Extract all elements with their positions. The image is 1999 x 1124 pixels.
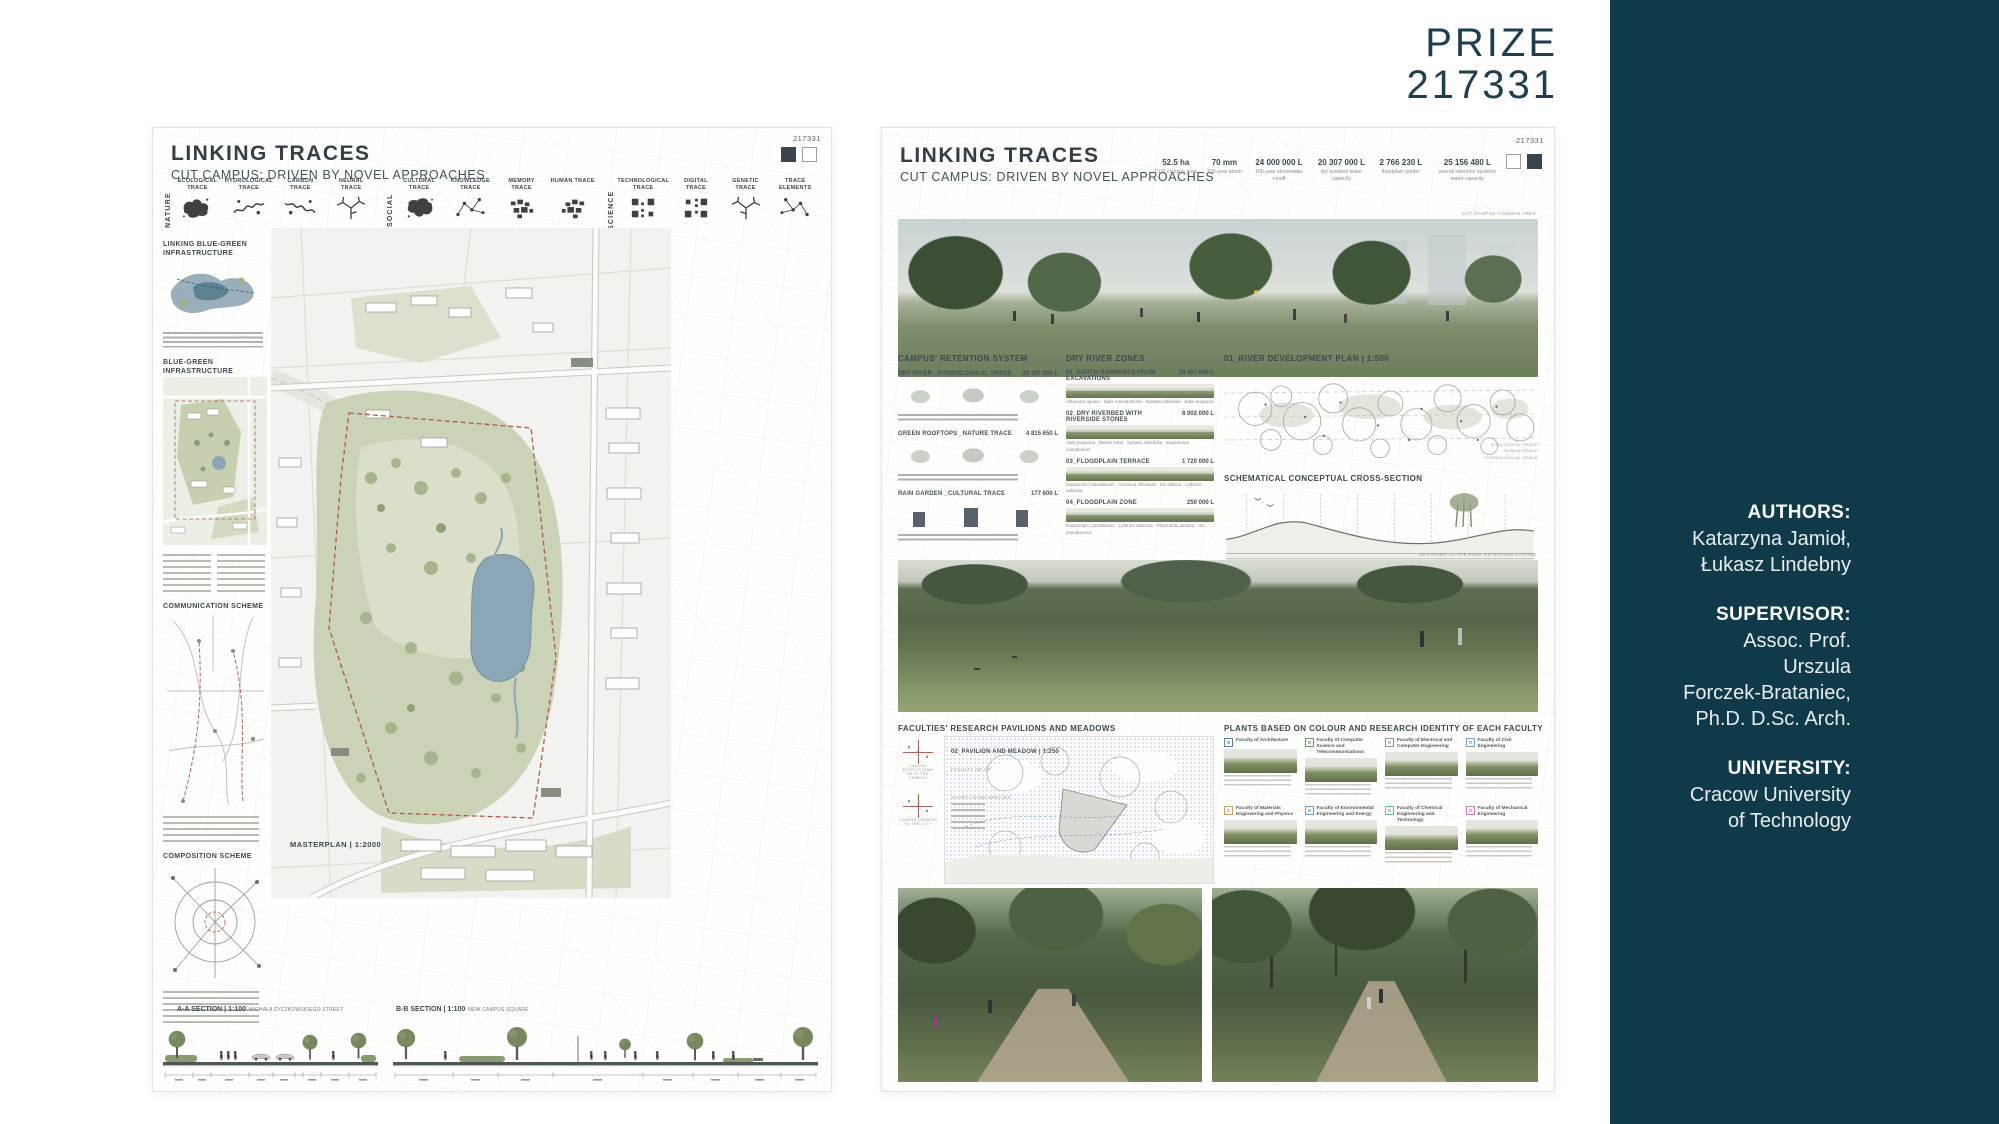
zone-item: 01_EARTH RAMPARTS FROM EXCAVATIONS20 307…: [1066, 370, 1214, 405]
slide-canvas: PRIZE 217331 AUTHORS: Katarzyna Jamioł, …: [0, 0, 1999, 1124]
caption-text-placeholder: [163, 332, 263, 348]
trace-item: DIGITAL TRACE: [671, 178, 721, 226]
trace-item: KNOWLEDGE TRACE: [445, 178, 496, 226]
poster-board-2: 217331 LINKING TRACES CUT CAMPUS: DRIVEN…: [881, 127, 1555, 1092]
supervisor-line: Urszula: [1683, 654, 1851, 680]
section-heading: COMMUNICATION SCHEME: [163, 602, 271, 611]
faculty-card: Faculty of Civil Engineering: [1466, 738, 1539, 796]
stat: 70 mm100-year storm: [1205, 158, 1245, 183]
credits-block: AUTHORS: Katarzyna Jamioł, Łukasz Lindeb…: [1683, 500, 1851, 834]
faculty-card: Faculty of Materials Engineering and Phy…: [1224, 806, 1297, 864]
note-item: LINKING CAMPUS TO THE CITY: [898, 794, 938, 826]
zone-species: Eupatorium cannabinum · Veronica officin…: [1066, 482, 1214, 495]
technological-trace-icon: [626, 195, 660, 221]
faculty-meadow-photo: [1466, 820, 1539, 844]
faculty-meadow-photo: [1305, 758, 1378, 782]
trace-item: TRACE ELEMENTS: [770, 178, 820, 226]
supervisor-label: SUPERVISOR:: [1683, 602, 1851, 628]
communication-scheme: [163, 611, 267, 807]
poster-header: LINKING TRACES CUT CAMPUS: DRIVEN BY NOV…: [171, 142, 485, 182]
trace-item: ECOLOGICAL TRACE: [172, 178, 223, 226]
trace-item: NEURAL TRACE: [326, 178, 377, 226]
board-index-squares: [781, 147, 817, 162]
retention-diagram: [898, 380, 1058, 412]
stat: 52.5 haCUT campus area: [1154, 158, 1198, 183]
key-stats-row: 52.5 haCUT campus area 70 mm100-year sto…: [1154, 158, 1502, 183]
zone-species: Eupatorium cannabinum · Lythrum salicari…: [1066, 523, 1214, 536]
zone-item: 04_FLOODPLAIN ZONE250 000 L Eupatorium c…: [1066, 500, 1214, 536]
legend-rows: [163, 816, 259, 842]
plants-heading: PLANTS BASED ON COLOUR AND RESEARCH IDEN…: [1224, 724, 1543, 733]
faculty-data-rows: [1466, 846, 1533, 858]
street-section-a: [163, 1018, 378, 1084]
author-name: Katarzyna Jamioł,: [1683, 526, 1851, 552]
cross-section-heading: SCHEMATICAL CONCEPTUAL CROSS-SECTION: [1224, 474, 1538, 483]
zone-photo-strip: [1066, 425, 1214, 439]
board-1-filled-square: [781, 147, 796, 162]
zones-heading: DRY RIVER ZONES: [1066, 354, 1214, 363]
board-index-squares: [1506, 154, 1542, 169]
trace-item: CARBON TRACE: [275, 178, 326, 226]
river-plan-heading: 01_RIVER DEVELOPMENT PLAN | 1:500: [1224, 354, 1538, 363]
carbon-trace-icon: [283, 195, 317, 221]
faculty-card: Faculty of Mechanical Engineering: [1466, 806, 1539, 864]
jogger-figures: [898, 560, 1538, 712]
faculty-icon: [1385, 738, 1394, 747]
trace-elements-icon: [778, 195, 812, 221]
faculty-icon: [1385, 806, 1394, 815]
rain-garden-diagram: [898, 500, 1058, 532]
faculty-data-rows: [1385, 778, 1452, 790]
mid-photo-label: DRY RIVER AS THE PARK RETENTION SYSTEM: [1419, 552, 1536, 557]
hydrological-trace-icon: [232, 195, 266, 221]
faculty-icon: [1305, 738, 1314, 747]
university-label: UNIVERSITY:: [1683, 756, 1851, 782]
retention-diagram: [898, 440, 1058, 472]
stat: 25 156 480 Loverall retention systems wa…: [1433, 158, 1502, 183]
supervisor-line: Ph.D. D.Sc. Arch.: [1683, 706, 1851, 732]
faculty-card: Faculty of Computer Science and Telecomm…: [1305, 738, 1378, 796]
top-photo-label: CUT CAMPUS COMMON AREA: [1462, 211, 1536, 216]
zone-item: 02_DRY RIVERBED WITH RIVERSIDE STONES8 0…: [1066, 411, 1214, 453]
memory-trace-icon: [505, 195, 539, 221]
bgi-plan: [163, 377, 267, 545]
board-2-filled-square: [1527, 154, 1542, 169]
prize-block: PRIZE 217331: [1407, 22, 1558, 106]
ecological-trace-icon: [180, 195, 214, 221]
retention-system-column: CAMPUS' RETENTION SYSTEM DRY RIVER _HYDR…: [898, 354, 1058, 542]
genetic-trace-icon: [729, 195, 763, 221]
faculty-icon: [1224, 738, 1233, 747]
river-plan-column: 01_RIVER DEVELOPMENT PLAN | 1:500 SCHEMA…: [1224, 354, 1538, 571]
faculty-grid: Faculty of Architecture Faculty of Compu…: [1224, 738, 1538, 864]
trace-tags: ECOLOGICAL TRACE HUMAN TRACE HYDROLOGICA…: [1485, 442, 1538, 461]
university-line: Cracow University: [1683, 782, 1851, 808]
caption-text-placeholder: [898, 534, 1018, 542]
section-a-label: A-A SECTION | 1:100MICHAŁA ŻYCZKOWSKIEGO…: [177, 1006, 343, 1013]
faculty-card: Faculty of Electrical and Computer Engin…: [1385, 738, 1458, 796]
linkage-sketch: [903, 794, 933, 818]
knowledge-trace-icon: [453, 195, 487, 221]
retention-item: DRY RIVER _HYDROLOGICAL TRACE20 307 000 …: [898, 371, 1058, 422]
legend-rows: [163, 554, 211, 592]
poster-title: LINKING TRACES: [171, 142, 485, 166]
trace-item: HUMAN TRACE: [547, 178, 598, 226]
pavilion-meadow-plan: 02_PAVILION AND MEADOW | 1:250 FACULTY O…: [944, 736, 1214, 884]
stat: 2 766 230 Lfloodplain polder: [1376, 158, 1426, 183]
retention-heading: CAMPUS' RETENTION SYSTEM: [898, 354, 1058, 363]
stat: 24 000 000 L100-year stormwater runoff: [1251, 158, 1306, 183]
credits-sidebar: AUTHORS: Katarzyna Jamioł, Łukasz Lindeb…: [1610, 0, 1999, 1124]
faculty-data-rows: [1224, 846, 1291, 858]
masterplan-map: [271, 228, 671, 898]
stat: 20 307 000 Ldry riverbed water capacity: [1314, 158, 1369, 183]
retention-item: RAIN GARDEN _CULTURAL TRACE177 600 L: [898, 491, 1058, 542]
zone-species: Salix purpurea · Betula nana · Spiraea s…: [1066, 440, 1214, 453]
group-label-nature: NATURE: [165, 184, 172, 236]
faculty-meadow-photo: [1385, 826, 1458, 850]
faculty-data-rows: [1466, 778, 1533, 790]
faculty-data-rows: [1305, 784, 1372, 796]
pavilion-notes: LINKING ECOSYSTEMS WITH THE CAMPUS LINKI…: [898, 740, 940, 826]
street-section-b: [393, 1018, 818, 1084]
trace-item: GENETIC TRACE: [721, 178, 771, 226]
faculty-meadow-photo: [1224, 749, 1297, 773]
dry-river-render: [898, 560, 1538, 712]
authors-label: AUTHORS:: [1683, 500, 1851, 526]
note-item: LINKING ECOSYSTEMS WITH THE CAMPUS: [898, 740, 938, 780]
prize-label: PRIZE: [1407, 22, 1558, 64]
composition-scheme: [163, 862, 267, 982]
board-code: 217331: [793, 134, 821, 143]
trace-item: TECHNOLOGICAL TRACE: [615, 178, 671, 226]
poster-board-1: 217331 LINKING TRACES CUT CAMPUS: DRIVEN…: [152, 127, 832, 1092]
supervisor-line: Assoc. Prof.: [1683, 628, 1851, 654]
digital-trace-icon: [679, 195, 713, 221]
caption-text-placeholder: [898, 414, 1018, 422]
section-b-label: B-B SECTION | 1:100NEW CAMPUS SQUARE: [396, 1006, 529, 1013]
faculty-icon: [1466, 738, 1475, 747]
faculty-meadow-photo: [1385, 752, 1458, 776]
zone-photo-strip: [1066, 467, 1214, 481]
faculty-meadow-photo: [1305, 820, 1378, 844]
author-name: Łukasz Lindebny: [1683, 552, 1851, 578]
pavilion-plan-drawing: [945, 737, 1213, 883]
watershed-diagram: [163, 259, 267, 325]
cultural-trace-icon: [402, 195, 436, 221]
neural-trace-icon: [334, 195, 368, 221]
faculty-data-rows: [1305, 846, 1372, 858]
legend-rows: [217, 554, 265, 592]
faculty-data-rows: [1385, 852, 1452, 864]
zone-item: 03_FLOODPLAIN TERRACE1 720 000 L Eupator…: [1066, 459, 1214, 495]
people-figures: [1212, 888, 1538, 1082]
section-heading: LINKING BLUE-GREEN INFRASTRUCTURE: [163, 240, 271, 259]
meadow-path-render: [898, 888, 1202, 1082]
dry-river-zones-column: DRY RIVER ZONES 01_EARTH RAMPARTS FROM E…: [1066, 354, 1214, 536]
section-heading: COMPOSITION SCHEME: [163, 852, 271, 861]
zone-photo-strip: [1066, 384, 1214, 398]
faculty-icon: [1305, 806, 1314, 815]
university-line: of Technology: [1683, 808, 1851, 834]
trace-item: HYDROLOGICAL TRACE: [223, 178, 275, 226]
people-figures: [898, 888, 1202, 1082]
prize-number: 217331: [1407, 64, 1558, 106]
faculty-meadow-photo: [1466, 752, 1539, 776]
caption-text-placeholder: [898, 474, 1018, 482]
board-1-outline-square: [1506, 154, 1521, 169]
section-heading: BLUE-GREEN INFRASTRUCTURE: [163, 358, 271, 377]
linkage-sketch: [903, 740, 933, 764]
faculty-meadow-photo: [1224, 820, 1297, 844]
trace-item: CULTURAL TRACE: [394, 178, 445, 226]
zone-species: Viburnum opulus · Salix rosmarinifolia ·…: [1066, 399, 1214, 405]
faculty-icon: [1466, 806, 1475, 815]
human-trace-icon: [556, 195, 590, 221]
trace-item: MEMORY TRACE: [496, 178, 547, 226]
faculty-card: Faculty of Chemical Engineering and Tech…: [1385, 806, 1458, 864]
forest-path-render: [1212, 888, 1538, 1082]
faculty-icon: [1224, 806, 1233, 815]
supervisor-line: Forczek-Brataniec,: [1683, 680, 1851, 706]
faculty-card: Faculty of Environmental Engineering and…: [1305, 806, 1378, 864]
pavilions-heading: FACULTIES' RESEARCH PAVILIONS AND MEADOW…: [898, 724, 1116, 733]
retention-item: GREEN ROOFTOPS _NATURE TRACE4 815 650 L: [898, 431, 1058, 482]
zone-photo-strip: [1066, 508, 1214, 522]
faculty-card: Faculty of Architecture: [1224, 738, 1297, 796]
masterplan-label: MASTERPLAN | 1:2000: [290, 840, 381, 849]
analysis-column: LINKING BLUE-GREEN INFRASTRUCTURE BLUE-G…: [163, 240, 271, 1025]
board-code: 217331: [1516, 136, 1544, 145]
board-2-outline-square: [802, 147, 817, 162]
faculty-data-rows: [1224, 775, 1291, 787]
